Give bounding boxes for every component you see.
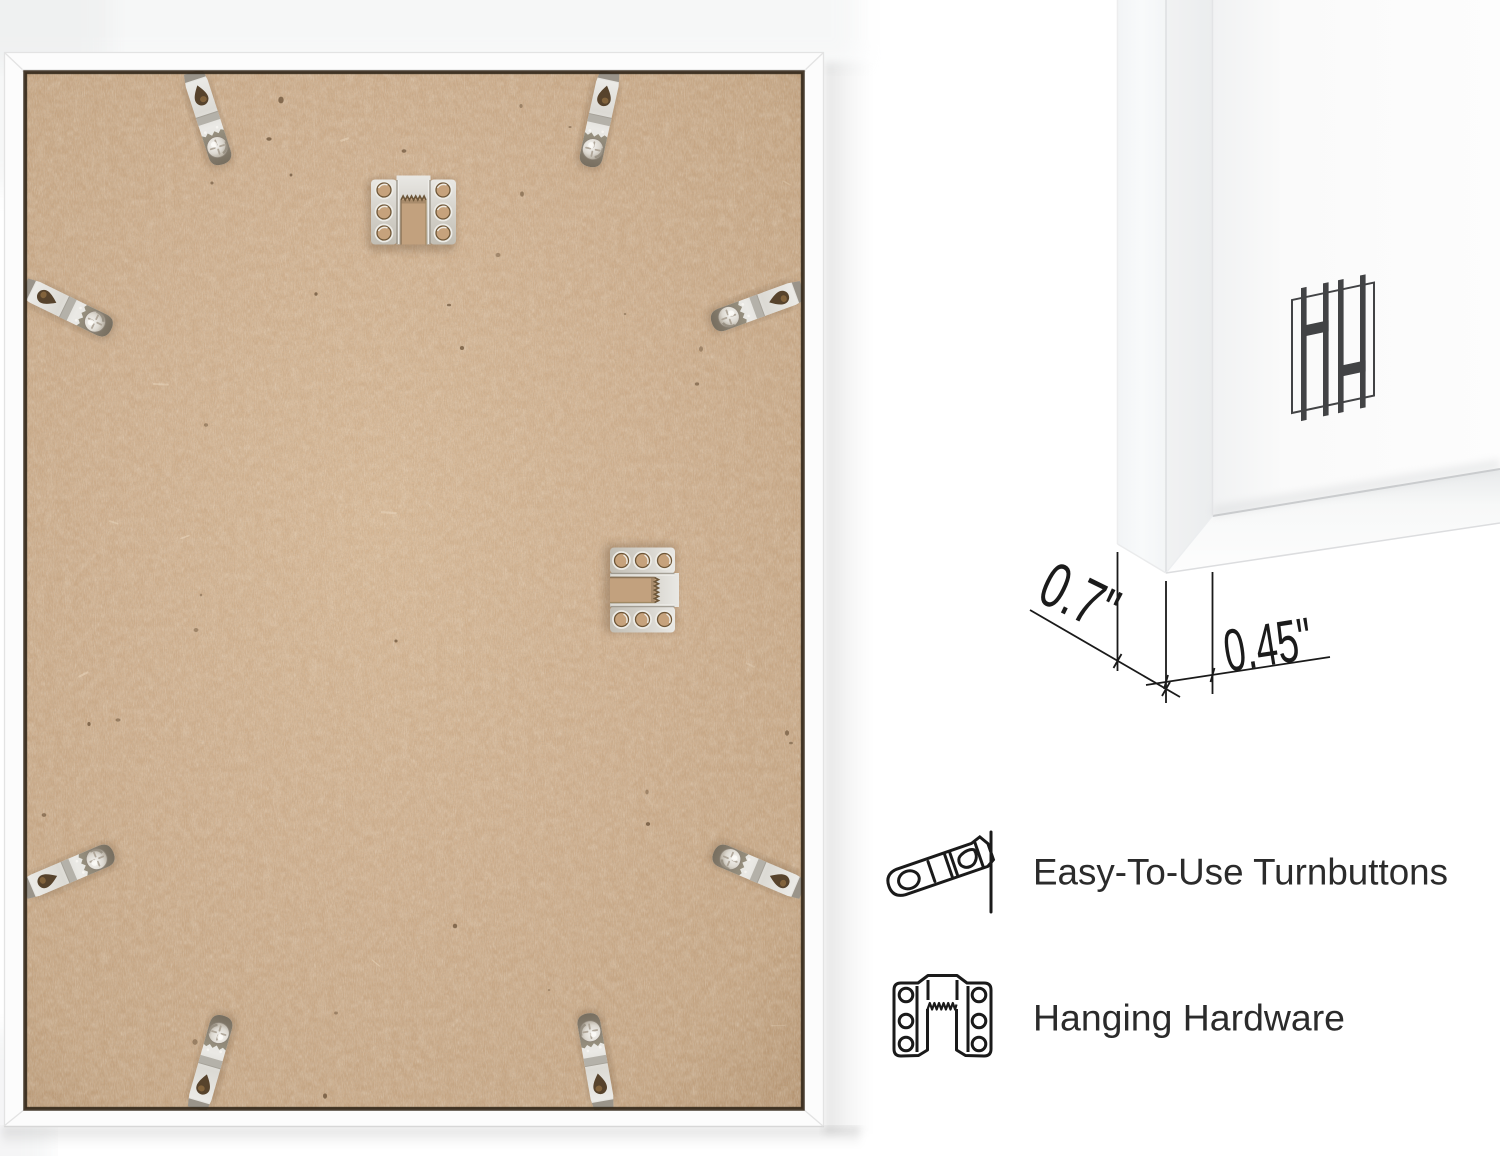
svg-text:0.45": 0.45" (1219, 604, 1317, 685)
svg-text:Easy-To-Use Turnbuttons: Easy-To-Use Turnbuttons (1033, 852, 1448, 893)
svg-text:Hanging Hardware: Hanging Hardware (1033, 998, 1345, 1039)
